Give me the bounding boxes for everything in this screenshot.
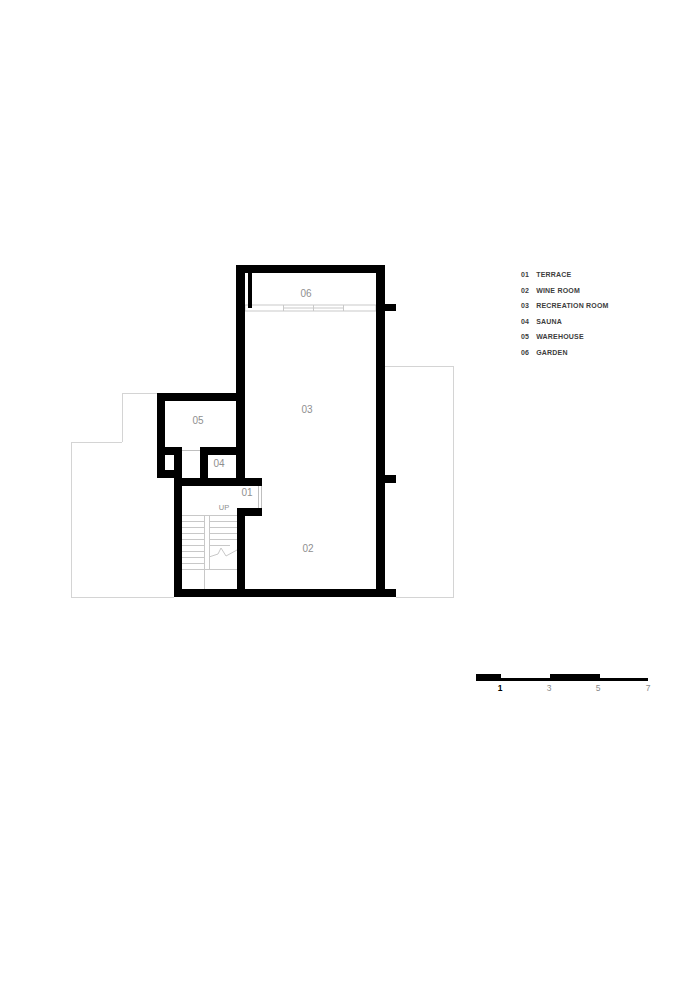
wall-room05-top xyxy=(157,393,245,401)
room-label-02: 02 xyxy=(302,543,314,554)
scale-bar-block-3-5 xyxy=(550,674,600,681)
room-label-01: 01 xyxy=(241,487,253,498)
wall-stub-right-mid xyxy=(385,475,396,483)
wall-left-lower xyxy=(237,516,245,589)
stairs xyxy=(182,515,237,589)
wall-left-upper xyxy=(236,265,245,478)
scale-label-3: 3 xyxy=(539,683,559,693)
scale-bar: 1 3 5 7 xyxy=(476,674,652,696)
scale-bar-block-0-1 xyxy=(476,674,501,681)
floor-plan-drawing: 06 03 05 04 01 02 UP xyxy=(0,0,698,1000)
legend-name: WINE ROOM xyxy=(536,287,580,294)
wall-bottom xyxy=(174,589,396,597)
room-label-04: 04 xyxy=(213,458,225,469)
legend-item-03: 03 RECREATION ROOM xyxy=(521,298,609,314)
wall-stair-left xyxy=(174,486,182,589)
legend-code: 01 xyxy=(521,267,534,283)
legend-name: SAUNA xyxy=(536,318,562,325)
legend-item-01: 01 TERRACE xyxy=(521,267,609,283)
legend-item-02: 02 WINE ROOM xyxy=(521,283,609,299)
legend-item-06: 06 GARDEN xyxy=(521,345,609,361)
scale-label-5: 5 xyxy=(588,683,608,693)
wall-nook-bottom xyxy=(237,508,262,516)
room-label-05: 05 xyxy=(192,415,204,426)
room-label-03: 03 xyxy=(301,404,313,415)
wall-right xyxy=(376,265,385,597)
legend-item-04: 04 SAUNA xyxy=(521,314,609,330)
upper-floor-outline xyxy=(71,366,454,598)
wall-top xyxy=(236,265,385,273)
legend-name: WAREHOUSE xyxy=(536,333,584,340)
wall-niche-right xyxy=(174,455,182,470)
legend-code: 03 xyxy=(521,298,534,314)
floor-plan-canvas: 06 03 05 04 01 02 UP 01 TERRACE 02 WINE … xyxy=(0,0,698,1000)
legend-name: RECREATION ROOM xyxy=(536,302,608,309)
wall-room04-left xyxy=(200,455,208,478)
stair-break-line xyxy=(209,548,237,557)
legend: 01 TERRACE 02 WINE ROOM 03 RECREATION RO… xyxy=(521,267,609,360)
legend-code: 05 xyxy=(521,329,534,345)
wall-stub-right-top xyxy=(385,304,396,311)
wall-niche-bottom xyxy=(157,470,182,478)
wall-room04-bottom xyxy=(174,478,262,486)
legend-code: 06 xyxy=(521,345,534,361)
legend-name: TERRACE xyxy=(536,271,571,278)
scale-label-1: 1 xyxy=(490,683,510,693)
stairs-up-label: UP xyxy=(219,503,229,512)
legend-code: 04 xyxy=(521,314,534,330)
legend-item-05: 05 WAREHOUSE xyxy=(521,329,609,345)
wall-stub-room06 xyxy=(248,273,252,308)
glazing-strip xyxy=(245,305,376,311)
legend-code: 02 xyxy=(521,283,534,299)
scale-label-7: 7 xyxy=(638,683,658,693)
wall-room05-left xyxy=(157,393,165,478)
legend-name: GARDEN xyxy=(536,349,568,356)
walls xyxy=(157,265,396,597)
wall-room04-top xyxy=(200,447,245,455)
wall-room05-bottom-left xyxy=(157,447,182,455)
room-label-06: 06 xyxy=(300,288,312,299)
